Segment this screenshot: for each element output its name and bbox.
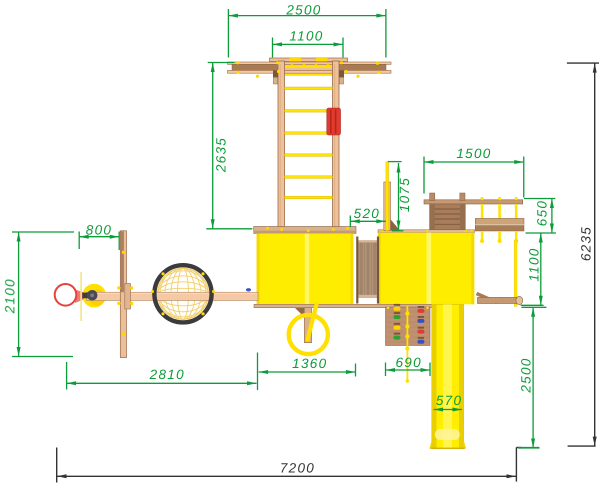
svg-text:690: 690 bbox=[395, 355, 421, 370]
svg-text:6235: 6235 bbox=[579, 226, 594, 261]
svg-text:2810: 2810 bbox=[149, 367, 185, 382]
svg-text:1100: 1100 bbox=[289, 29, 323, 44]
svg-text:1100: 1100 bbox=[527, 247, 542, 281]
svg-text:1360: 1360 bbox=[292, 356, 327, 371]
svg-text:650: 650 bbox=[535, 200, 550, 226]
svg-text:570: 570 bbox=[436, 393, 462, 408]
svg-text:7200: 7200 bbox=[280, 460, 315, 475]
svg-text:1075: 1075 bbox=[397, 177, 412, 212]
svg-text:2635: 2635 bbox=[214, 137, 229, 173]
svg-text:520: 520 bbox=[354, 206, 380, 221]
svg-text:2500: 2500 bbox=[519, 357, 534, 393]
svg-text:2100: 2100 bbox=[3, 278, 18, 314]
svg-text:800: 800 bbox=[86, 222, 112, 237]
svg-text:1500: 1500 bbox=[456, 146, 491, 161]
svg-text:2500: 2500 bbox=[285, 2, 321, 17]
